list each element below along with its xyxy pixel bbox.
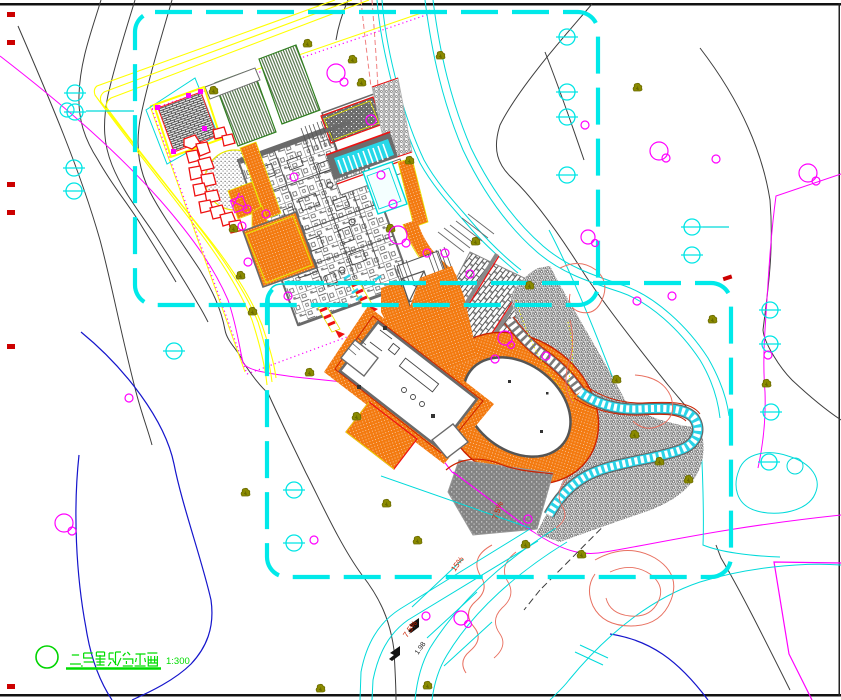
svg-text:1:300: 1:300 <box>166 656 190 667</box>
